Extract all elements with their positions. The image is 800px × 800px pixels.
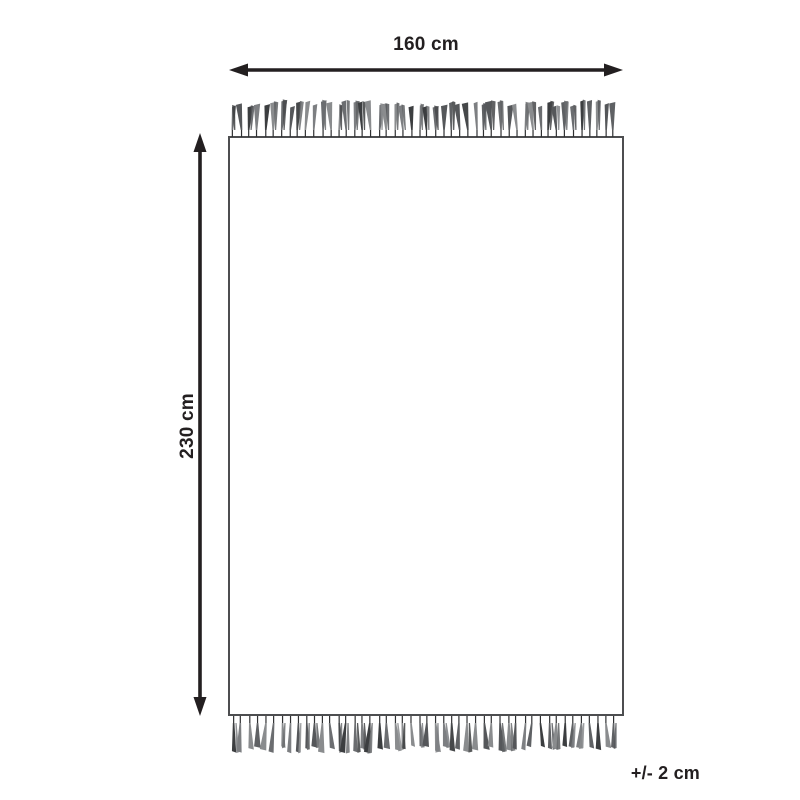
fringe-tassel [474,102,478,130]
fringe-tassel [468,723,472,753]
fringe-tassel [570,105,574,130]
width-arrowhead-left [229,64,248,77]
fringe-tassel [283,99,287,130]
fringe-tassel [384,723,390,749]
rug-outline-graphic [0,0,800,800]
fringe-tassel [409,106,414,130]
fringe-tassel [269,723,275,753]
fringe-tassel [410,723,415,747]
rug-dimension-diagram: 160 cm 230 cm +/- 2 cm [0,0,800,800]
fringe-tassel [609,102,615,130]
fringe-tassel [472,723,478,750]
height-arrowhead-top [194,133,207,152]
fringe-tassel [377,723,383,750]
fringe-tassel [289,106,294,130]
fringe-tassel [502,723,507,752]
fringe-tassel [462,102,469,130]
fringe-tassel [605,723,611,748]
fringe-tassel [449,102,453,130]
fringe-tassel [527,723,533,747]
fringe-tassel [313,104,318,130]
fringe-tassel [347,100,350,130]
fringe-tassel [455,723,460,750]
fringe-tassel [248,723,253,750]
fringe-tassel [589,723,595,749]
fringe-tassel [488,723,494,748]
fringe-tassel [587,100,592,130]
fringe-tassel [512,104,518,130]
fringe-tassel [326,102,332,130]
fringe-tassel [264,104,270,130]
fringe-tassel [250,105,254,130]
fringe-tassel [353,723,357,752]
fringe-tassel [605,103,609,130]
bottom-fringe [232,716,617,754]
width-arrowhead-right [604,64,623,77]
fringe-tassel [540,723,545,747]
tolerance-label: +/- 2 cm [598,763,700,784]
fringe-tassel [260,723,267,751]
rug-body [229,137,623,715]
fringe-tassel [596,723,601,750]
fringe-tassel [450,723,456,752]
fringe-tassel [463,723,469,752]
fringe-tassel [236,103,242,130]
fringe-tassel [441,105,448,130]
fringe-tassel [538,106,542,130]
fringe-tassel [311,723,317,748]
fringe-tassel [454,104,460,130]
fringe-tassel [562,723,567,747]
fringe-tassel [365,100,372,130]
top-fringe [232,99,616,137]
height-dimension-label: 230 cm [177,390,199,462]
fringe-tassel [287,723,291,753]
fringe-tassel [362,101,365,130]
fringe-tassel [254,723,261,748]
fringe-tassel [557,105,560,130]
width-dimension-label: 160 cm [229,34,623,56]
fringe-tassel [305,101,311,130]
fringe-tassel [341,100,347,130]
width-dimension-arrow [229,64,623,77]
fringe-tassel [521,723,526,750]
height-arrowhead-bottom [194,697,207,716]
fringe-tassel [232,723,236,753]
fringe-tassel [346,723,350,754]
fringe-tassel [274,101,278,130]
fringe-tassel [446,723,451,748]
fringe-tassel [548,723,552,749]
fringe-tassel [254,104,260,130]
fringe-tassel [329,723,335,749]
fringe-tassel [357,723,361,753]
